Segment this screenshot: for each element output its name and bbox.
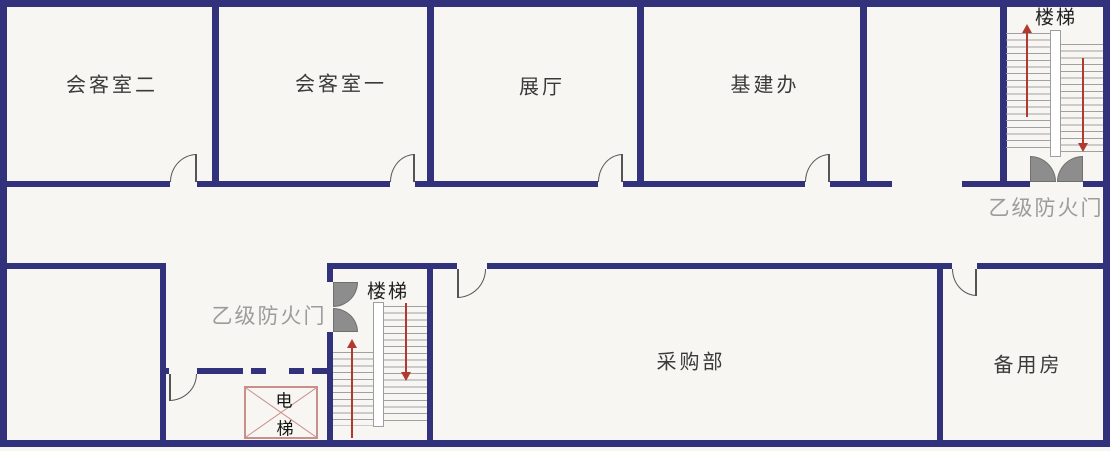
door-leaf-spareroom [975,269,977,296]
wall-stairwell-bottom-right [427,263,433,447]
reception-room-1-label: 会客室一 [295,68,387,97]
wall-stairwell-bottom-left-upper [327,263,333,282]
fire-door-leaf-topright-left [1030,156,1056,182]
door-leaf-reception2 [195,154,197,182]
door-arc-spareroom [952,269,977,296]
wall-corridor-top-seg5 [830,181,892,187]
wall-bottomleft-room-right [160,263,166,447]
wall-corridor-top-seg3 [415,181,598,187]
wall-corridor-bottom-seg5 [977,263,1103,269]
stairs-topright-flight-left [1006,33,1051,153]
stairs-bottom-divider [373,302,384,427]
up-arrow-icon-bottom [347,339,357,348]
reception-room-2-label: 会客室二 [66,69,158,98]
wall-elevator-seg1 [160,368,169,374]
up-arrow-line-bottom [351,347,353,438]
wall-corridor-bottom-seg4 [943,263,952,269]
door-leaf-elevator-lobby [169,374,171,401]
procurement-dept-label: 采购部 [657,346,726,375]
wall-corridor-top-seg1 [7,181,170,187]
down-arrow-icon-bottom [401,372,411,381]
wall-corridor-bottom-seg1 [7,263,160,269]
wall-outer-bottom [0,440,1110,447]
door-leaf-reception1 [413,154,415,182]
wall-divider-infrastructure-hall [860,7,867,187]
up-arrow-line-topright [1026,32,1028,117]
wall-corridor-top-seg2 [197,181,390,187]
door-leaf-infrastructure [828,154,830,182]
wall-spareroom-left [937,263,943,447]
fire-door-topright-label: 乙级防火门 [989,192,1104,222]
wall-corridor-top-seg6 [962,181,1030,187]
spare-room-label: 备用房 [994,349,1063,378]
wall-corridor-top-seg4 [623,181,805,187]
door-arc-infrastructure [805,154,830,182]
fire-door-leaf-topright-right [1057,156,1083,182]
stairs-topright-divider [1050,30,1061,157]
elevator-label-line2: 梯 [277,415,294,440]
down-arrow-icon-topright [1078,143,1088,152]
floor-plan: 电 梯 会客室二 会客室一 展厅 基建办 采购部 备用房 楼梯 楼梯 乙级防火门… [0,0,1110,451]
infrastructure-office-label: 基建办 [731,69,800,98]
stairs-topright-label: 楼梯 [1035,3,1077,30]
wall-divider-reception2-reception1 [212,7,219,187]
door-leaf-procurement [457,269,459,298]
door-arc-reception2 [170,154,197,182]
fire-door-leaf-lobby-top [333,282,358,307]
fire-door-lobby-label: 乙级防火门 [212,300,327,330]
wall-elevator-seg2 [197,368,243,374]
wall-corridor-bottom-seg2 [327,263,457,269]
door-arc-procurement [457,269,486,298]
wall-elevator-seg3 [312,368,327,374]
down-arrow-line-bottom [405,303,407,373]
wall-divider-reception1-exhibition [427,7,434,187]
door-arc-exhibition [598,154,623,182]
fire-door-leaf-lobby-bottom [333,308,358,332]
stairs-bottom-flight-left [333,352,374,426]
wall-elevator-dash1 [251,368,266,374]
elevator-label-line1: 电 [276,387,293,412]
door-leaf-exhibition [621,154,623,182]
wall-divider-exhibition-infrastructure [637,7,644,187]
stairs-bottom-label: 楼梯 [367,277,409,304]
wall-outer-left [0,0,7,447]
up-arrow-icon-topright [1022,24,1032,33]
wall-outer-top [0,0,1110,7]
wall-corridor-bottom-seg3 [487,263,937,269]
wall-corridor-top-seg7 [1083,181,1103,187]
wall-outer-right [1103,0,1110,447]
exhibition-hall-label: 展厅 [519,71,565,100]
door-arc-elevator-lobby [169,374,197,401]
down-arrow-line-topright [1082,58,1084,144]
door-arc-reception1 [390,154,415,182]
wall-elevator-dash2 [289,368,304,374]
